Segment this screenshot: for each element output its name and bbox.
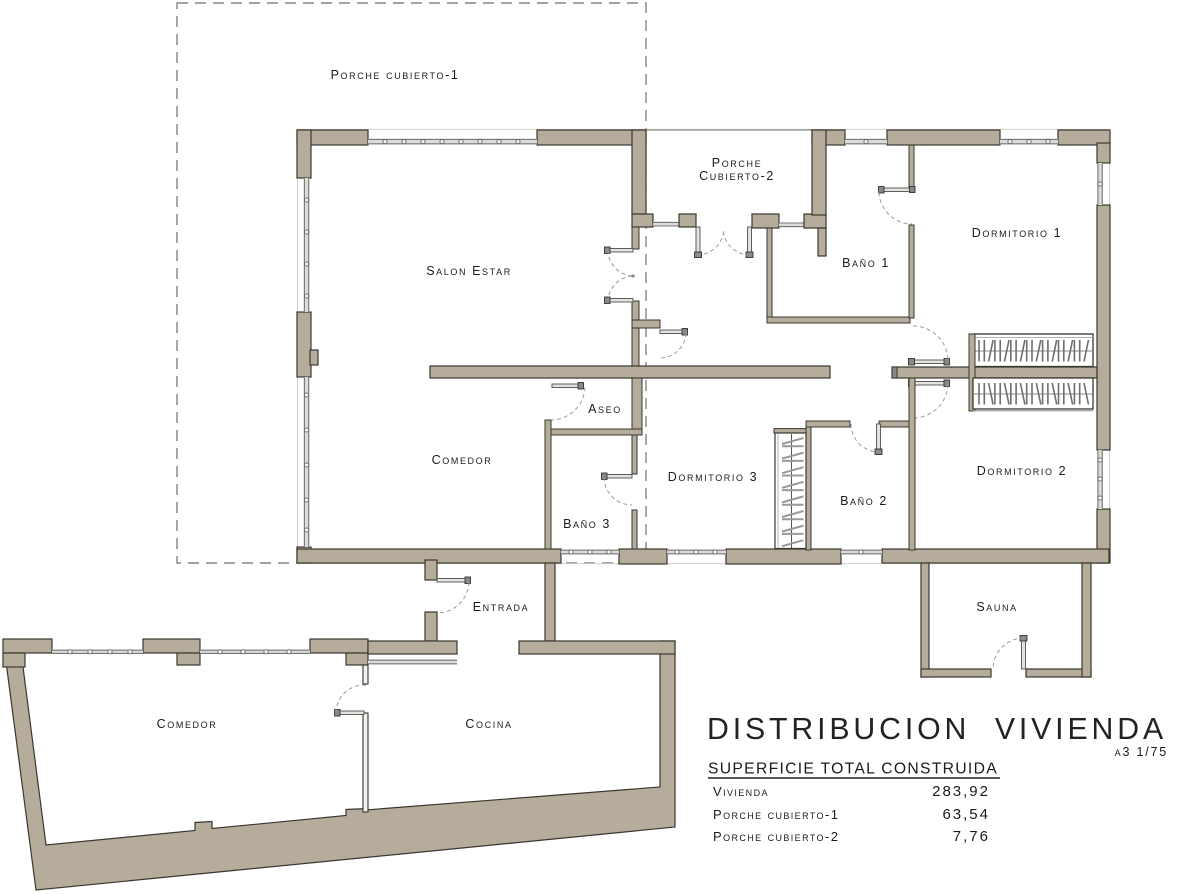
- svg-text:a3 1/75: a3 1/75: [1115, 745, 1168, 759]
- svg-text:Vivienda: Vivienda: [713, 784, 769, 799]
- svg-text:Baño 3: Baño 3: [563, 517, 611, 531]
- svg-text:Porche: Porche: [712, 156, 762, 170]
- svg-text:Baño 1: Baño 1: [842, 256, 890, 270]
- svg-text:Comedor: Comedor: [157, 717, 218, 731]
- svg-text:Dormitorio 3: Dormitorio 3: [668, 470, 759, 484]
- svg-text:Porche cubierto-1: Porche cubierto-1: [331, 68, 460, 82]
- svg-text:283,92: 283,92: [932, 783, 990, 800]
- svg-text:Baño 2: Baño 2: [840, 494, 888, 508]
- svg-text:Cubierto-2: Cubierto-2: [699, 169, 775, 183]
- svg-text:Dormitorio 1: Dormitorio 1: [972, 226, 1063, 240]
- svg-text:Comedor: Comedor: [432, 453, 493, 467]
- svg-text:Salon Estar: Salon Estar: [426, 264, 512, 278]
- svg-text:63,54: 63,54: [942, 806, 990, 823]
- svg-text:Cocina: Cocina: [465, 717, 512, 731]
- svg-text:Porche cubierto-2: Porche cubierto-2: [713, 829, 839, 844]
- svg-text:Entrada: Entrada: [473, 600, 530, 614]
- svg-text:DISTRIBUCION VIVIENDA: DISTRIBUCION VIVIENDA: [707, 712, 1167, 746]
- svg-text:7,76: 7,76: [953, 828, 990, 845]
- svg-text:Dormitorio 2: Dormitorio 2: [977, 464, 1068, 478]
- svg-text:Sauna: Sauna: [976, 600, 1017, 614]
- svg-text:Aseo: Aseo: [588, 402, 622, 416]
- svg-text:SUPERFICIE TOTAL CONSTRUIDA: SUPERFICIE TOTAL CONSTRUIDA: [708, 761, 998, 778]
- svg-text:Porche cubierto-1: Porche cubierto-1: [713, 807, 839, 822]
